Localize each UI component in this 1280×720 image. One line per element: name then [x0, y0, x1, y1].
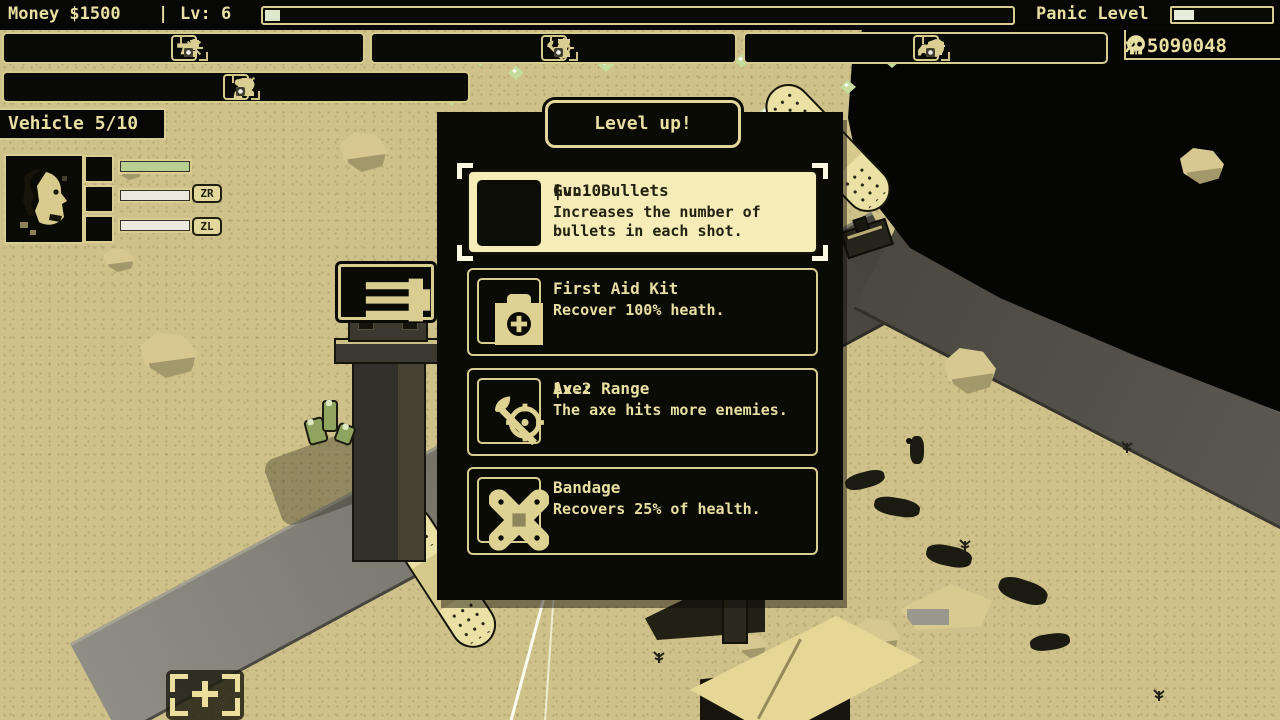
- selection-corner: [457, 163, 473, 179]
- portrait-face: [6, 156, 82, 242]
- map-border-line: [1124, 30, 1126, 60]
- toolbar-group-gun: [2, 32, 365, 64]
- levelup-title: Level up!: [545, 100, 741, 148]
- health-bar: [118, 159, 192, 174]
- selection-corner: [457, 245, 473, 261]
- option-level: Lv.10: [553, 181, 601, 200]
- separator: |: [158, 4, 168, 24]
- option-level: Lv.2: [553, 379, 592, 398]
- axe-bar-fill: [121, 221, 189, 230]
- dead-bush: [1150, 686, 1168, 702]
- top-bar: Money $1500 | Lv: 6 Panic Level: [0, 0, 1280, 30]
- character-portrait: [4, 154, 84, 244]
- enemy-figure: [910, 436, 924, 464]
- xp-progress-fill: [265, 10, 280, 21]
- cactus: [322, 400, 338, 432]
- toolbar-group-axe: [370, 32, 737, 64]
- levelup-option-axe-range[interactable]: Axe: Range|Lv.2The axe hits more enemies…: [467, 368, 818, 456]
- bullets3-icon: [477, 180, 541, 246]
- option-description: The axe hits more enemies.: [553, 401, 803, 420]
- gun-ammo-bar: [118, 188, 192, 203]
- panic-progress-bar: [1170, 6, 1274, 24]
- aim-reticle: [166, 670, 244, 720]
- toolbar-group-car: [743, 32, 1108, 64]
- gun-slot: [84, 185, 114, 213]
- axe-slot: [84, 215, 114, 243]
- kill-count-value: x 5090048: [1124, 35, 1227, 57]
- toolbar-group-character: [2, 71, 470, 103]
- levelup-option-gun-bullets[interactable]: Gun: Bullets|Lv.10Increases the number o…: [467, 170, 818, 254]
- game-screen: Money $1500 | Lv: 6 Panic Level x 509004…: [0, 0, 1280, 720]
- dead-bush: [650, 648, 668, 664]
- option-description: Recover 100% heath.: [553, 301, 803, 320]
- option-title: Bandage: [553, 478, 620, 497]
- gun-bar-fill: [121, 191, 189, 200]
- panic-label: Panic Level: [1036, 4, 1149, 24]
- selection-corner: [812, 163, 828, 179]
- selection-corner: [812, 245, 828, 261]
- levelup-option-first-aid-kit[interactable]: First Aid KitRecover 100% heath.: [467, 268, 818, 356]
- levelup-option-bandage[interactable]: BandageRecovers 25% of health.: [467, 467, 818, 555]
- option-title: First Aid Kit: [553, 279, 678, 298]
- health-bar-fill: [121, 162, 189, 171]
- watchtower-body: [352, 350, 426, 562]
- level-label: Lv: 6: [180, 4, 231, 24]
- bandage-icon: [477, 477, 541, 543]
- minigun-icon: [353, 275, 443, 325]
- xp-progress-bar: [261, 6, 1015, 25]
- zl-button-hint: ZL: [192, 217, 222, 236]
- option-description: Increases the number of bullets in each …: [553, 203, 803, 241]
- firstaid-icon: [477, 278, 541, 344]
- axerange-icon: [477, 378, 541, 444]
- option-description: Recovers 25% of health.: [553, 500, 803, 519]
- vehicle-counter-label: Vehicle 5/10: [0, 108, 166, 140]
- minigun-pickup-box: [338, 264, 434, 320]
- axe-cooldown-bar: [118, 218, 192, 233]
- health-slot: [84, 155, 114, 183]
- panic-progress-fill: [1174, 10, 1194, 20]
- money-label: Money $1500: [8, 4, 121, 24]
- dead-bush: [1118, 438, 1136, 454]
- map-border-line: [1124, 58, 1280, 60]
- zr-button-hint: ZR: [192, 184, 222, 203]
